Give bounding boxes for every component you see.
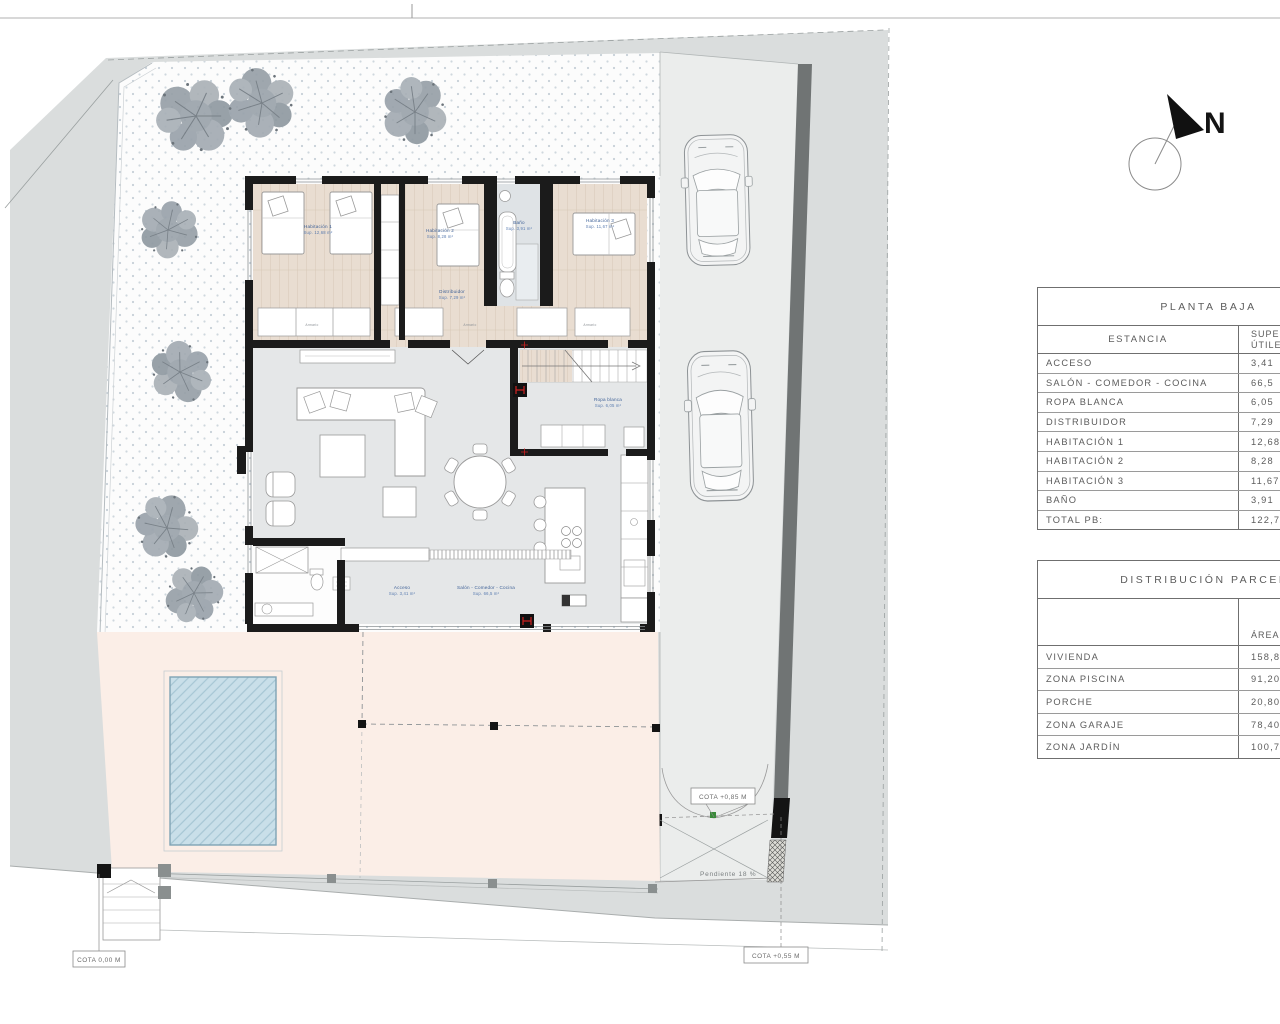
tv-bench xyxy=(341,548,429,561)
label-habitacion-2-sup: Sup. 8,28 m² xyxy=(427,234,454,239)
north-arrow-icon: N xyxy=(1129,94,1226,190)
sideboard xyxy=(300,350,395,363)
table-row: VIVIENDA158,80 xyxy=(1038,646,1280,669)
table-row: ROPA BLANCA6,05 xyxy=(1038,393,1280,413)
label-distribuidor: Distribuidor xyxy=(439,289,465,294)
table-title: PLANTA BAJA xyxy=(1038,288,1280,326)
porch-column xyxy=(490,722,498,730)
table-row: HABITACIÓN 311,67 xyxy=(1038,472,1280,492)
label-acceso-sup: Sup. 3,41 m² xyxy=(389,591,416,596)
col-header-estancia: ESTANCIA xyxy=(1038,326,1238,353)
label-bano: Baño xyxy=(513,220,525,225)
table-row: ZONA PISCINA91,20 xyxy=(1038,669,1280,692)
kitchen-cabinets xyxy=(621,455,648,622)
col-header-area: ÁREA xyxy=(1238,599,1280,645)
label-armario: Armario xyxy=(305,323,318,327)
porch-column xyxy=(652,724,660,732)
label-habitacion-1-sup: Sup. 12,68 m² xyxy=(304,230,333,235)
coffee-table xyxy=(320,435,365,477)
table-row: ACCESO3,41 xyxy=(1038,354,1280,374)
stairs xyxy=(520,350,647,382)
table-title: DISTRIBUCIÓN PARCELA xyxy=(1038,561,1280,599)
label-distribuidor-sup: Sup. 7,29 m² xyxy=(439,295,466,300)
house: Habitación 1 Sup. 12,68 m² Habitación 2 … xyxy=(237,176,655,632)
porch-column xyxy=(358,720,366,728)
label-salon: Salón - Comedor - Cocina xyxy=(457,585,515,590)
entry-steps xyxy=(97,864,171,940)
table-row: ZONA JARDÍN100,78 xyxy=(1038,736,1280,758)
table-row: BAÑO3,91 xyxy=(1038,491,1280,511)
stool xyxy=(534,496,546,508)
floor-grille xyxy=(429,550,571,559)
label-ropa-blanca-sup: Sup. 6,05 m² xyxy=(595,403,622,408)
pool xyxy=(170,677,276,845)
car-icon xyxy=(683,350,758,501)
north-label: N xyxy=(1204,107,1226,140)
table-row: HABITACIÓN 28,28 xyxy=(1038,452,1280,472)
table-row: PORCHE20,80 xyxy=(1038,691,1280,714)
stool xyxy=(534,519,546,531)
table-row: SALÓN - COMEDOR - COCINA66,5 xyxy=(1038,374,1280,394)
label-salon-sup: Sup. 66,5 m² xyxy=(473,591,500,596)
table-row: HABITACIÓN 112,68 xyxy=(1038,432,1280,452)
cota-55-label: COTA +0,55 M xyxy=(752,953,800,960)
bed xyxy=(330,192,372,254)
table-distribucion-parcela: DISTRIBUCIÓN PARCELA ÁREA VIVIENDA158,80… xyxy=(1037,560,1280,759)
label-armario: Armario xyxy=(463,323,476,327)
table-row-total: TOTAL PB:122,7 xyxy=(1038,511,1280,530)
car-icon xyxy=(680,134,754,266)
label-acceso: Acceso xyxy=(394,585,411,590)
cota-0-label: COTA 0,00 M xyxy=(77,957,121,964)
slope-label: Pendiente 18 % xyxy=(700,871,756,878)
side-table xyxy=(383,487,416,517)
col-header-empty xyxy=(1038,599,1238,645)
cota-85-label: COTA +0,85 M xyxy=(699,794,747,801)
label-habitacion-2: Habitación 2 xyxy=(426,228,454,233)
driveway: Pendiente 18 % xyxy=(650,52,812,882)
label-bano-sup: Sup. 3,91 m² xyxy=(506,226,533,231)
table-row: ZONA GARAJE78,40 xyxy=(1038,714,1280,737)
label-habitacion-1: Habitación 1 xyxy=(304,224,332,229)
bed xyxy=(262,192,304,254)
laundry-cabinets xyxy=(541,425,644,447)
col-header-superficies: SUPERFICIES ÚTILES xyxy=(1238,326,1280,353)
table-row: DISTRIBUIDOR7,29 xyxy=(1038,413,1280,433)
label-armario: Armario xyxy=(583,323,596,327)
label-ropa-blanca: Ropa blanca xyxy=(594,397,622,402)
label-habitacion-3-sup: Sup. 11,67 m² xyxy=(586,224,615,229)
label-habitacion-3: Habitación 3 xyxy=(586,218,614,223)
table-planta-baja: PLANTA BAJA ESTANCIA SUPERFICIES ÚTILES … xyxy=(1037,287,1280,530)
